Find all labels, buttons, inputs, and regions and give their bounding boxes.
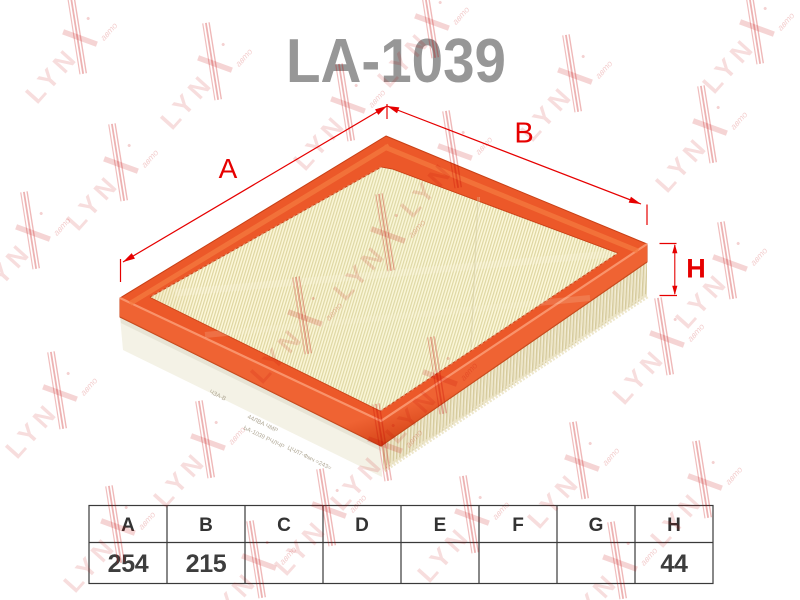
svg-text:C: C [277, 515, 291, 536]
svg-text:B: B [199, 515, 213, 536]
svg-text:F: F [512, 515, 524, 536]
svg-text:D: D [355, 515, 369, 536]
svg-text:A: A [219, 153, 238, 184]
svg-text:44: 44 [660, 550, 688, 578]
svg-text:215: 215 [186, 550, 227, 578]
svg-text:G: G [589, 515, 604, 536]
